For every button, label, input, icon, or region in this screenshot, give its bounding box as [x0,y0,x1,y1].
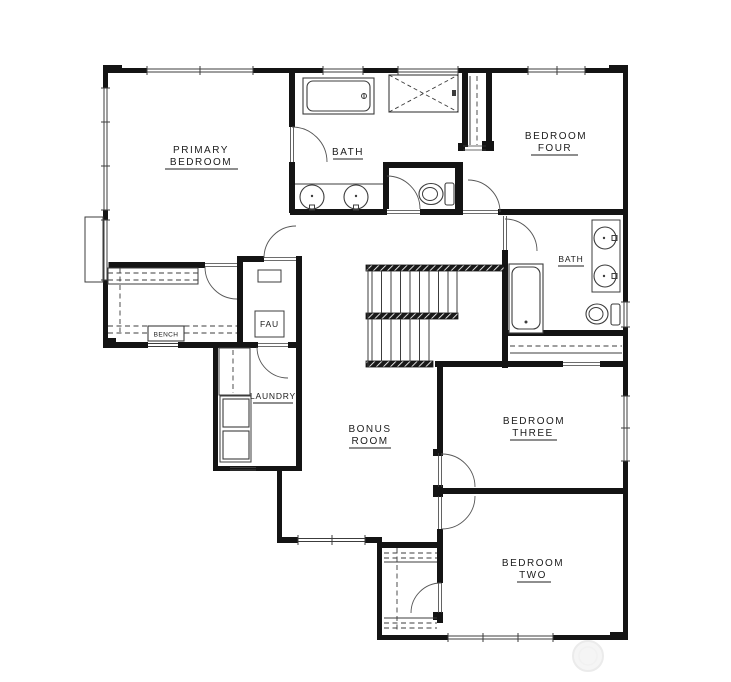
stair-railing [366,265,504,271]
window [323,66,363,75]
toilet-icon [419,183,454,205]
door-opening [264,258,296,261]
watermark-circle [573,641,603,671]
svg-text:ROOM: ROOM [351,436,388,447]
room-label-primary-bath: BATH [332,147,364,159]
door-opening [439,583,442,613]
door-opening [291,127,294,162]
stair-railing [366,313,458,319]
door-opening [205,264,237,267]
bathtub-icon [509,264,543,333]
shower-icon [389,75,458,112]
svg-text:BATH: BATH [558,254,583,264]
sink-icon [594,227,617,249]
sink-icon [344,185,368,210]
closet-shelving [384,548,437,632]
niche-opening [148,344,178,347]
stair-railing [366,361,433,367]
room-label-bench: BENCH [154,332,179,339]
svg-text:BEDROOM: BEDROOM [525,131,587,142]
svg-text:BEDROOM: BEDROOM [502,558,564,569]
window [101,220,110,280]
door-arc [205,267,237,299]
vent-icon [258,270,281,282]
svg-text:TWO: TWO [519,570,547,581]
svg-text:BEDROOM: BEDROOM [503,416,565,427]
door-arc [292,127,327,162]
door-opening [439,453,442,487]
svg-text:BONUS: BONUS [348,424,391,435]
closet-shelving [108,268,237,333]
door-arc [468,180,500,212]
door-arc [411,583,441,613]
window [621,302,630,327]
window [101,88,110,210]
floor-plan: PRIMARY BEDROOM BATH BEDROOM FOUR BATH B… [0,0,731,682]
floor-plan-page: PRIMARY BEDROOM BATH BEDROOM FOUR BATH B… [0,0,731,682]
door-opening [463,211,498,214]
stair-treads-lower [372,319,420,361]
closet-shelf [470,76,477,145]
bypass-door-opening [563,363,600,366]
window [528,66,585,75]
room-label-fau: FAU [260,319,279,329]
svg-text:FOUR: FOUR [538,143,572,154]
door-opening [439,496,442,529]
switchback-stairs [366,265,504,367]
room-label-bedroom-four: BEDROOM FOUR [525,131,587,155]
window [298,535,365,545]
stair-treads-upper [372,271,448,313]
bump-out [85,217,103,282]
room-label-bedroom-two: BEDROOM TWO [502,558,564,582]
door-opening [504,216,507,250]
svg-text:LAUNDRY: LAUNDRY [250,391,296,401]
svg-text:THREE: THREE [512,428,553,439]
toilet-icon [586,304,620,325]
room-label-bedroom-three: BEDROOM THREE [503,416,565,440]
door-openings [205,127,600,613]
washer-dryer-icon [220,396,251,462]
door-opening [387,211,420,214]
svg-text:BENCH: BENCH [154,332,179,339]
door-arc [505,219,537,251]
closet-shelving [510,346,622,353]
window [621,396,630,461]
door-arc [257,347,288,378]
door-arc [442,454,475,487]
room-label-hall-bath: BATH [558,254,584,266]
room-label-primary-bedroom: PRIMARY BEDROOM [165,145,238,169]
door-opening [258,344,288,347]
bathtub-icon [303,78,374,114]
door-arc [264,226,296,258]
laundry-counter [219,348,250,395]
window [147,66,253,75]
door-arc [387,176,420,209]
window [398,66,458,75]
sink-icon [300,185,324,210]
svg-text:PRIMARY: PRIMARY [173,145,229,156]
room-label-bonus-room: BONUS ROOM [348,424,391,448]
room-label-laundry: LAUNDRY [250,391,296,403]
window [448,633,553,642]
svg-text:FAU: FAU [260,319,279,329]
svg-text:BATH: BATH [332,147,364,158]
door-arc [442,496,475,529]
sink-icon [594,265,617,287]
svg-text:BEDROOM: BEDROOM [170,157,232,168]
